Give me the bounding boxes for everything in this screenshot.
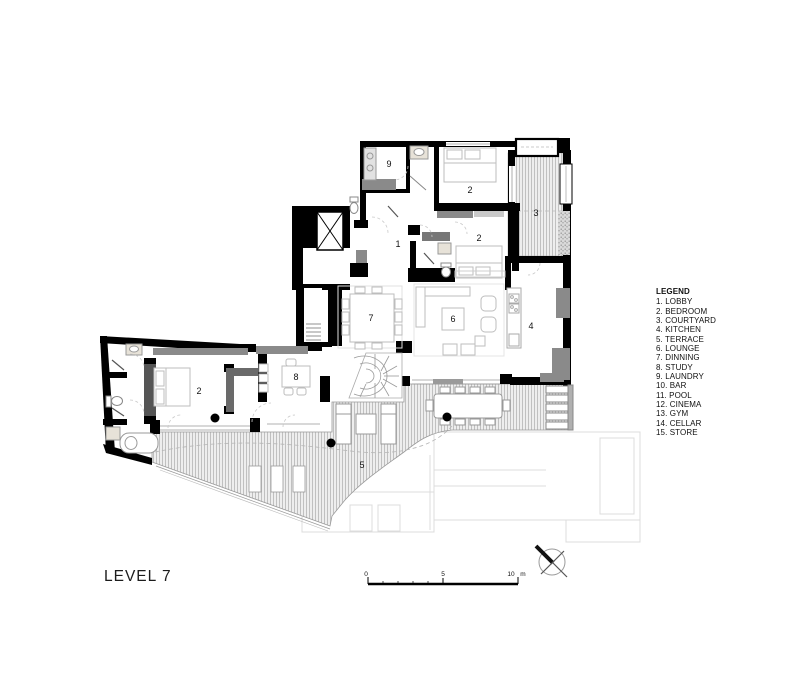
- legend-item-bar: 10. BAR: [656, 381, 716, 390]
- label-bedroom-mid: 2: [476, 233, 481, 243]
- label-study: 8: [293, 372, 298, 382]
- study-desk: [259, 359, 310, 395]
- legend-item-cellar: 14. CELLAR: [656, 419, 716, 428]
- toilet: [106, 396, 123, 407]
- label-bedroom-top: 2: [467, 185, 472, 195]
- bathtub: [120, 433, 158, 453]
- legend-item-study: 8. STUDY: [656, 363, 716, 372]
- label-lounge: 6: [450, 314, 455, 324]
- label-courtyard: 3: [533, 208, 538, 218]
- toilet: [441, 263, 451, 277]
- level-title: LEVEL 7: [104, 568, 172, 586]
- wardrobe: [437, 211, 473, 218]
- legend: LEGEND 1. LOBBY 2. BEDROOM 3. COURTYARD …: [656, 287, 716, 438]
- armchair: [481, 317, 496, 332]
- armchair: [481, 296, 496, 311]
- legend-item-bedroom: 2. BEDROOM: [656, 307, 716, 316]
- legend-item-terrace: 5. TERRACE: [656, 335, 716, 344]
- label-dinning: 7: [368, 313, 373, 323]
- terrace-skylights: [249, 466, 305, 492]
- scale-zero: 0: [364, 571, 368, 578]
- label-lobby: 1: [395, 239, 400, 249]
- scale-five: 5: [441, 571, 445, 578]
- bed: [444, 148, 496, 182]
- legend-item-cinema: 12. CINEMA: [656, 400, 716, 409]
- scale-unit: m: [520, 571, 525, 578]
- legend-item-gym: 13. GYM: [656, 409, 716, 418]
- bed: [154, 368, 190, 406]
- scale-bar: 0 5 10 m: [364, 571, 526, 584]
- legend-item-store: 15. STORE: [656, 428, 716, 437]
- kitchen-sink: [509, 334, 519, 346]
- label-terrace: 5: [359, 460, 364, 470]
- legend-item-lobby: 1. LOBBY: [656, 297, 716, 306]
- legend-title: LEGEND: [656, 287, 716, 296]
- sink: [130, 346, 139, 352]
- wardrobe: [422, 232, 450, 241]
- column: [443, 413, 452, 422]
- planter-strip: [558, 211, 570, 255]
- label-bedroom-lower: 2: [196, 386, 201, 396]
- legend-item-courtyard: 3. COURTYARD: [656, 316, 716, 325]
- spiral-stair: [349, 353, 402, 398]
- vanity: [438, 243, 451, 254]
- sun-loungers: [546, 385, 573, 430]
- legend-item-pool: 11. POOL: [656, 391, 716, 400]
- lounge-sofa-set: [414, 271, 505, 356]
- label-kitchen: 4: [528, 321, 533, 331]
- column: [211, 414, 220, 423]
- vanity: [106, 427, 120, 440]
- label-laundry: 9: [386, 159, 391, 169]
- scale-ten: 10: [507, 571, 515, 578]
- legend-item-dinning: 7. DINNING: [656, 353, 716, 362]
- wardrobe: [362, 179, 396, 190]
- planter-box: [516, 139, 558, 156]
- kitchen-counter: [507, 288, 521, 348]
- legend-item-lounge: 6. LOUNGE: [656, 344, 716, 353]
- shower-door: [410, 176, 426, 190]
- column: [327, 439, 336, 448]
- legend-item-kitchen: 4. KITCHEN: [656, 325, 716, 334]
- compass-north-arrow-icon: [536, 546, 567, 577]
- legend-item-laundry: 9. LAUNDRY: [656, 372, 716, 381]
- toilet: [350, 197, 358, 214]
- tv-partition-wall: [226, 368, 258, 412]
- floor-plan-page: 9 2 3 1 2 4 7 6 8 2 5 0 5 10 m LEVEL 7 L…: [0, 0, 800, 680]
- sink: [414, 149, 424, 156]
- bed: [456, 246, 502, 278]
